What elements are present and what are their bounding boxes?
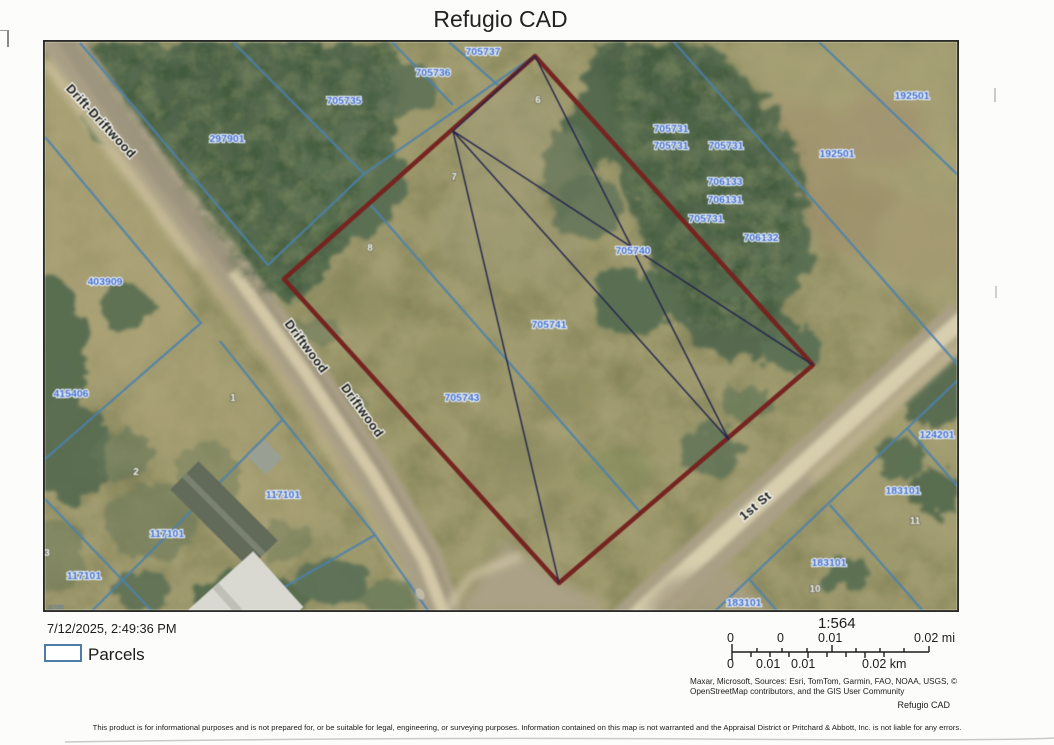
- svg-text:117101: 117101: [266, 489, 301, 501]
- svg-text:2: 2: [133, 467, 139, 478]
- svg-text:1: 1: [230, 393, 236, 404]
- svg-text:11: 11: [910, 516, 921, 527]
- svg-text:705735: 705735: [326, 95, 361, 107]
- svg-text:3: 3: [45, 548, 50, 559]
- svg-text:183101: 183101: [726, 597, 761, 609]
- svg-text:124201: 124201: [919, 429, 954, 441]
- svg-text:117101: 117101: [67, 570, 102, 582]
- svg-text:117101: 117101: [48, 605, 65, 610]
- svg-text:706132: 706132: [743, 232, 778, 244]
- svg-text:705740: 705740: [615, 245, 650, 257]
- svg-text:705731: 705731: [688, 213, 723, 225]
- svg-text:705743: 705743: [444, 392, 479, 404]
- svg-text:705731: 705731: [708, 140, 743, 152]
- svg-text:7: 7: [451, 172, 457, 183]
- svg-text:6: 6: [535, 95, 541, 106]
- svg-text:183101: 183101: [885, 485, 920, 497]
- svg-text:10: 10: [809, 584, 821, 595]
- svg-text:706131: 706131: [707, 194, 742, 206]
- svg-text:192501: 192501: [894, 90, 929, 102]
- svg-text:706133: 706133: [707, 176, 742, 188]
- svg-text:705741: 705741: [531, 319, 566, 331]
- svg-text:297901: 297901: [209, 133, 244, 145]
- svg-text:192501: 192501: [819, 148, 854, 160]
- svg-text:415406: 415406: [53, 388, 88, 400]
- svg-text:705731: 705731: [653, 123, 688, 135]
- svg-text:183101: 183101: [811, 557, 846, 569]
- svg-text:403909: 403909: [87, 276, 122, 288]
- svg-text:705731: 705731: [653, 140, 688, 152]
- svg-text:8: 8: [367, 243, 373, 254]
- svg-text:705736: 705736: [415, 67, 450, 79]
- svg-text:705737: 705737: [465, 46, 500, 58]
- svg-text:117101: 117101: [150, 528, 185, 540]
